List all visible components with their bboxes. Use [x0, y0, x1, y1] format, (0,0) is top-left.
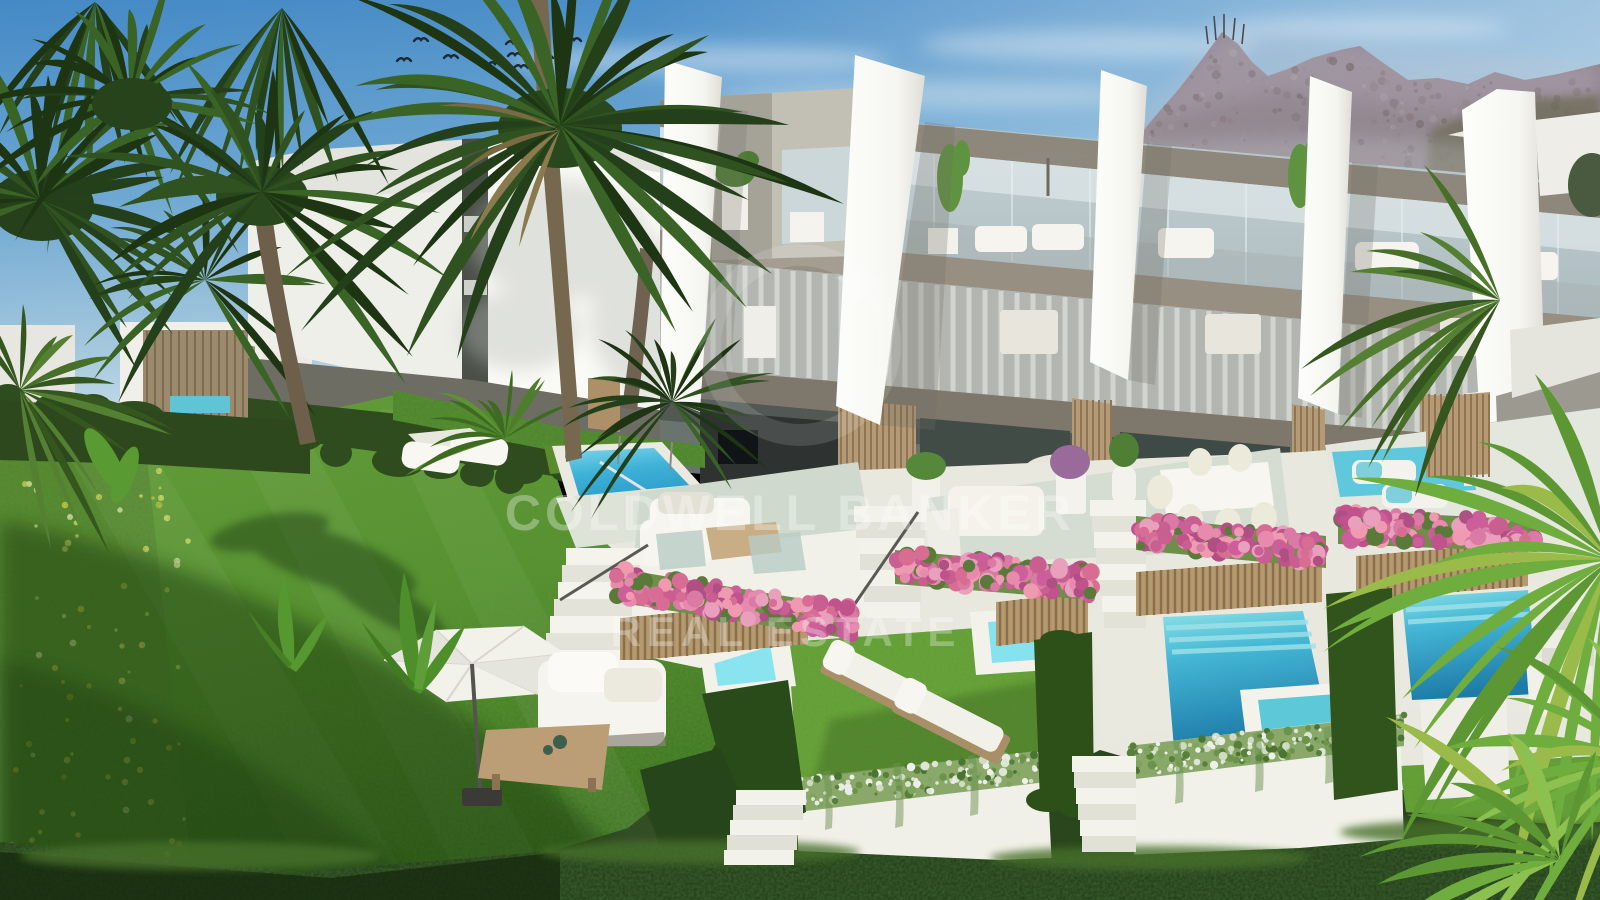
svg-text:COLDWELL BANKER: COLDWELL BANKER: [505, 485, 1075, 541]
svg-text:REAL ESTATE: REAL ESTATE: [611, 608, 962, 655]
